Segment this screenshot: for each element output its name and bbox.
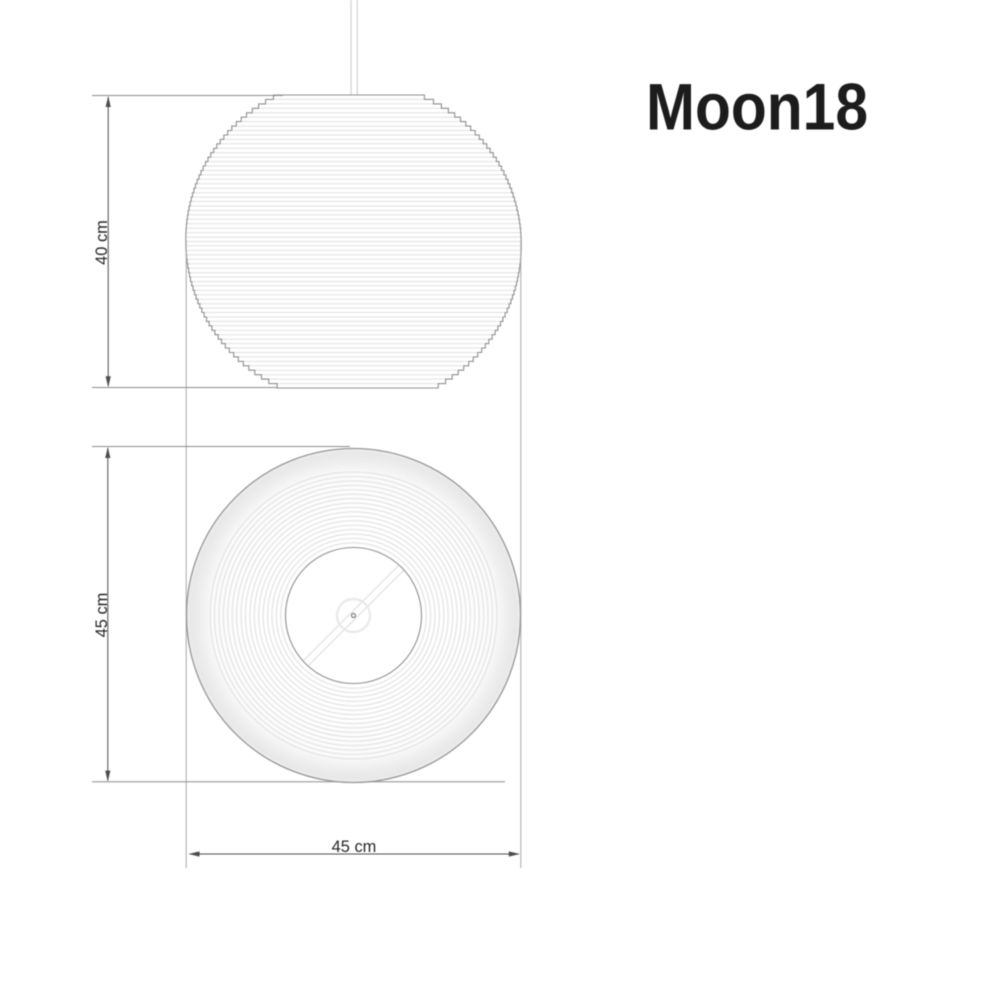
svg-text:45 cm: 45 cm xyxy=(332,838,377,856)
svg-text:45 cm: 45 cm xyxy=(93,593,111,638)
svg-text:40 cm: 40 cm xyxy=(93,220,111,265)
svg-text:Moon18: Moon18 xyxy=(646,70,868,144)
